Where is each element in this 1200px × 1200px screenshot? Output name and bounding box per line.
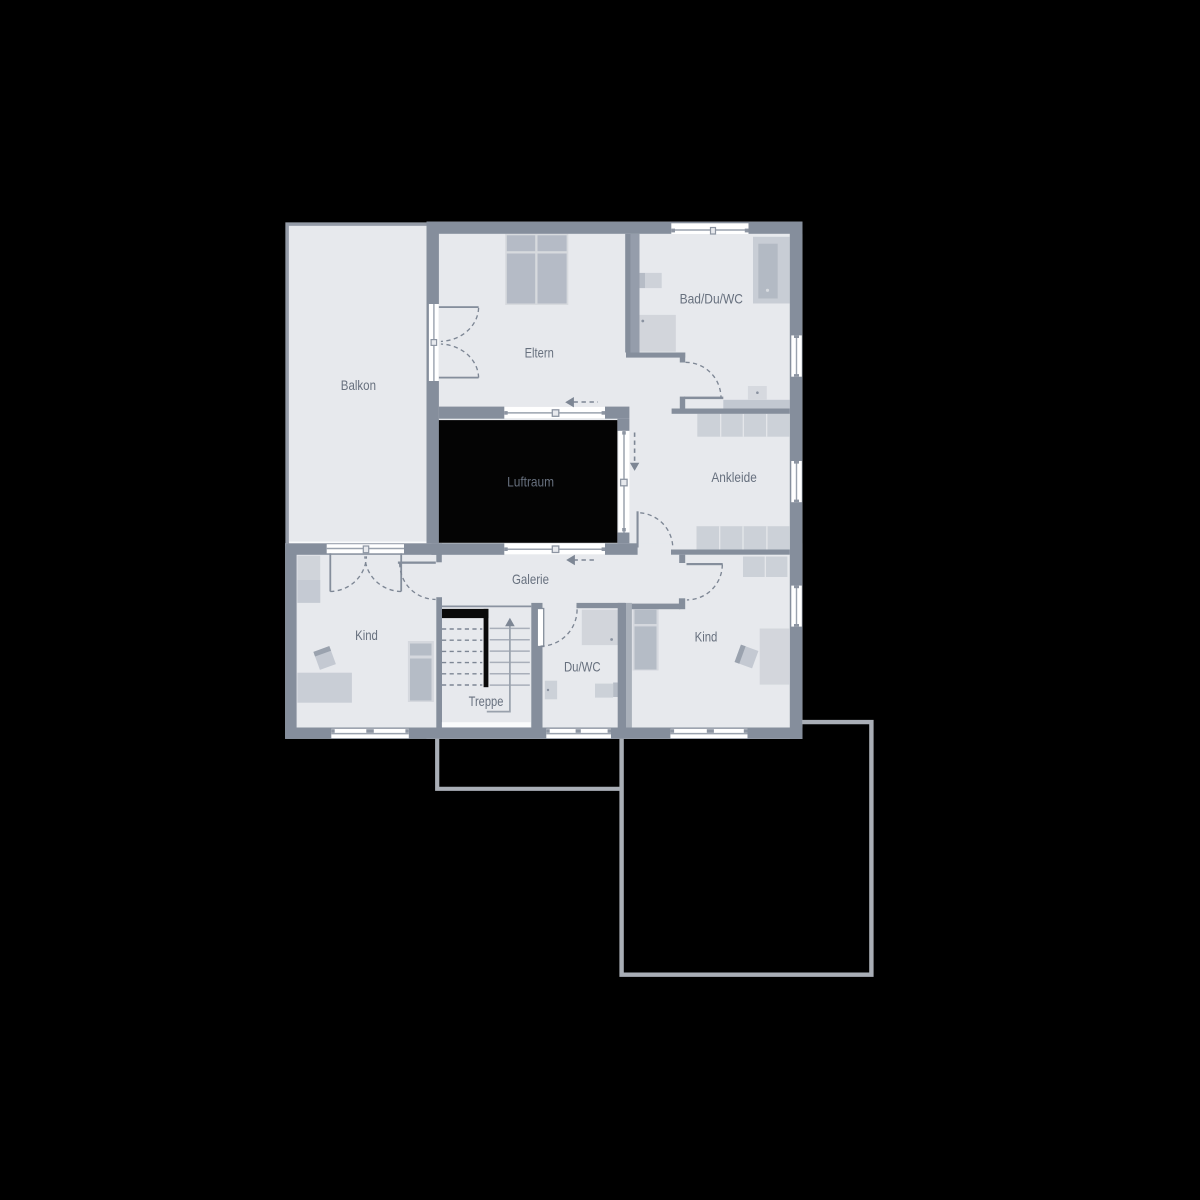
svg-text:Luftraum: Luftraum [507,475,554,490]
svg-text:Balkon: Balkon [341,378,376,393]
svg-text:Treppe: Treppe [469,694,504,709]
svg-text:Bad/Du/WC: Bad/Du/WC [680,291,743,306]
svg-text:Galerie: Galerie [512,572,549,587]
svg-text:Ankleide: Ankleide [711,470,756,485]
svg-text:Eltern: Eltern [525,346,554,361]
svg-text:Du/WC: Du/WC [564,660,601,675]
svg-text:Kind: Kind [695,629,718,644]
svg-text:Kind: Kind [355,628,378,643]
